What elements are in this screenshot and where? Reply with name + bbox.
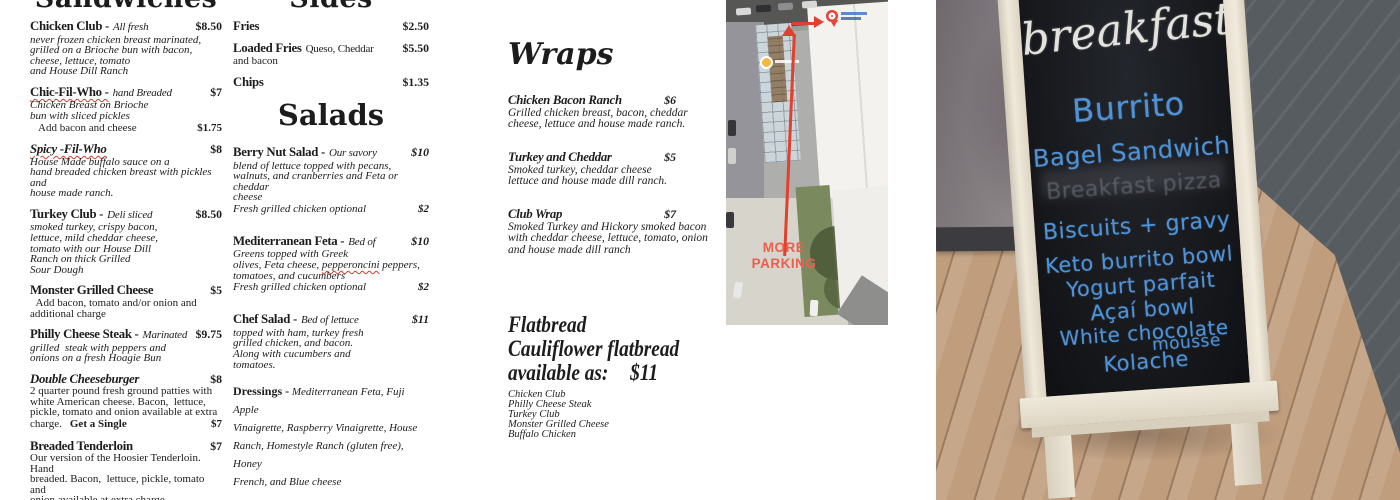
menu-item-chic-fil-who: Chic-Fil-Who - hand Breaded $7 Chicken B… xyxy=(30,86,222,134)
map-car xyxy=(728,148,736,164)
item-lead: All fresh xyxy=(113,21,148,34)
item-lead: Marinated xyxy=(143,329,188,342)
menu-item-monster-grilled-cheese: Monster Grilled Cheese $5 Add bacon, tom… xyxy=(30,284,222,319)
item-name: Spicy -Fil-Who xyxy=(30,143,107,156)
item-description: Smoked Turkey and Hickory smoked bacon w… xyxy=(508,222,713,257)
item-head: Turkey Club - Deli sliced $8.50 xyxy=(30,208,222,222)
item-price: $5 xyxy=(664,151,676,164)
item-head: Chips $1.35 xyxy=(233,76,429,89)
item-name: Philly Cheese Steak - xyxy=(30,328,139,341)
item-lead: Bed of xyxy=(348,236,375,249)
option-price: $2 xyxy=(418,204,429,215)
flatbread-block: Flatbread Cauliflower flatbread availabl… xyxy=(508,313,676,440)
map-poi-label xyxy=(775,60,799,63)
item-description: Greens topped with Greek olives, Feta ch… xyxy=(233,249,429,281)
addon-label: Add bacon and cheese xyxy=(30,123,137,135)
item-price: $2.50 xyxy=(402,20,429,33)
item-name: Mediterranean Feta - xyxy=(233,235,344,248)
item-lead: Deli sliced xyxy=(107,209,152,222)
sandwiches-column: Sandwiches Chicken Club - All fresh $8.5… xyxy=(30,0,222,500)
menu-item-turkey-and-cheddar: Turkey and Cheddar $5 Smoked turkey, che… xyxy=(508,151,676,188)
menu-item-philly-cheese-steak: Philly Cheese Steak - Marinated $9.75 gr… xyxy=(30,328,222,364)
item-price: $6 xyxy=(664,94,676,107)
item-description: Add bacon, tomato and/or onion and addit… xyxy=(30,298,222,319)
item-description: grilled steak with peppers and onions on… xyxy=(30,343,222,364)
location-map: MORE PARKING xyxy=(726,0,888,325)
addon-label: Get a Single xyxy=(62,419,127,431)
item-head: Fries $2.50 xyxy=(233,20,429,33)
item-lead: hand Breaded xyxy=(113,87,172,100)
flatbread-title-line2: Cauliflower flatbread xyxy=(508,337,649,361)
item-name: Monster Grilled Cheese xyxy=(30,284,153,297)
map-car xyxy=(726,212,734,228)
parking-arrow-right-icon xyxy=(814,16,824,28)
item-description: 2 quarter pound fresh ground patties wit… xyxy=(30,386,222,418)
item-head: Philly Cheese Steak - Marinated $9.75 xyxy=(30,328,222,342)
section-title-salads: Salads xyxy=(233,100,429,130)
menu-item-loaded-fries: Loaded Fries Queso, Cheddar $5.50 and ba… xyxy=(233,42,429,67)
item-head: Mediterranean Feta - Bed of $10 xyxy=(233,235,429,249)
section-title-sides: Sides xyxy=(233,0,429,12)
map-car xyxy=(728,120,736,136)
chalk-item: Biscuits + gravy xyxy=(1034,207,1239,246)
map-pin-icon xyxy=(830,20,838,27)
item-description: Mediterranean Feta, Fuji Apple Vinaigret… xyxy=(233,386,417,488)
option-price: $2 xyxy=(418,282,429,293)
menu-item-mediterranean-feta: Mediterranean Feta - Bed of $10 Greens t… xyxy=(233,235,429,293)
item-name: Breaded Tenderloin xyxy=(30,440,133,453)
item-name: Chicken Bacon Ranch xyxy=(508,94,622,107)
item-name: Turkey and Cheddar xyxy=(508,151,612,164)
item-description: House Made buffalo sauce on a hand bread… xyxy=(30,157,222,199)
map-building-roof xyxy=(807,1,888,207)
item-name: Dressings - xyxy=(233,384,289,398)
flatbread-options: Chicken Club Philly Cheese Steak Turkey … xyxy=(508,390,676,440)
item-description: Chicken Breast on Brioche bun with slice… xyxy=(30,100,222,121)
item-name: Fries xyxy=(233,20,259,33)
item-name: Club Wrap xyxy=(508,208,562,221)
item-option-row: Fresh grilled chicken optional $2 xyxy=(233,204,429,215)
menu-item-berry-nut-salad: Berry Nut Salad - Our savory $10 blend o… xyxy=(233,146,429,215)
map-car xyxy=(802,0,817,8)
menu-item-fries: Fries $2.50 xyxy=(233,20,429,33)
item-price: $7 xyxy=(210,440,222,453)
menu-item-chips: Chips $1.35 xyxy=(233,76,429,89)
map-poi-dot-icon xyxy=(760,56,773,69)
item-head: Chef Salad - Bed of lettuce $11 xyxy=(233,313,429,327)
chalk-title: breakfast xyxy=(1019,0,1227,66)
item-name: Turkey Club - xyxy=(30,208,103,221)
more-parking-label: MORE PARKING xyxy=(740,240,828,272)
item-description: blend of lettuce topped with pecans, wal… xyxy=(233,161,429,203)
chalk-item: Burrito xyxy=(1025,81,1231,133)
chalkboard-sign: breakfast Burrito Bagel Sandwich Breakfa… xyxy=(994,0,1278,500)
addon-price: $7 xyxy=(211,419,222,431)
item-tail: Queso, Cheddar xyxy=(306,43,374,56)
item-price: $8 xyxy=(210,143,222,156)
board-leg-right xyxy=(1231,422,1262,486)
item-head: Loaded Fries Queso, Cheddar $5.50 xyxy=(233,42,429,56)
item-head: Breaded Tenderloin $7 xyxy=(30,440,222,453)
map-car xyxy=(736,7,751,15)
menu-item-double-cheeseburger: Double Cheeseburger $8 2 quarter pound f… xyxy=(30,373,222,431)
menu-item-dressings: Dressings - Mediterranean Feta, Fuji App… xyxy=(233,382,429,490)
item-description: topped with ham, turkey fresh grilled ch… xyxy=(233,328,429,370)
item-name: Chef Salad - xyxy=(233,313,297,326)
item-head: Double Cheeseburger $8 xyxy=(30,373,222,386)
item-price: $7 xyxy=(210,86,222,99)
map-car xyxy=(756,4,771,12)
item-price: $7 xyxy=(664,208,676,221)
item-head: Monster Grilled Cheese $5 xyxy=(30,284,222,297)
map-pin-label xyxy=(841,17,861,20)
menu-item-spicy-fil-who: Spicy -Fil-Who $8 House Made buffalo sau… xyxy=(30,143,222,199)
chalkboard-surface: breakfast Burrito Bagel Sandwich Breakfa… xyxy=(1015,0,1250,397)
item-price: $9.75 xyxy=(195,328,222,341)
item-price: $5 xyxy=(210,284,222,297)
item-option-row: Fresh grilled chicken optional $2 xyxy=(233,282,429,293)
item-head: Chicken Club - All fresh $8.50 xyxy=(30,20,222,34)
parking-arrow-line xyxy=(792,22,816,25)
flatbread-option: Buffalo Chicken xyxy=(508,430,676,440)
menu-item-turkey-club: Turkey Club - Deli sliced $8.50 smoked t… xyxy=(30,208,222,275)
item-price: $10 xyxy=(411,146,429,159)
item-description: Our version of the Hoosier Tenderloin. H… xyxy=(30,453,222,500)
item-price: $8.50 xyxy=(195,20,222,33)
menu-page: Sandwiches Chicken Club - All fresh $8.5… xyxy=(0,0,1400,500)
item-head: Club Wrap $7 xyxy=(508,208,676,221)
item-name: Berry Nut Salad - xyxy=(233,146,325,159)
item-price: $11 xyxy=(412,313,429,326)
flatbread-price: $11 xyxy=(630,361,658,385)
item-name: Chic-Fil-Who - xyxy=(30,86,109,99)
addon-price: $1.75 xyxy=(197,123,222,135)
item-name: Chips xyxy=(233,76,264,89)
item-price: $8.50 xyxy=(195,208,222,221)
map-car xyxy=(810,300,819,316)
item-name: Chicken Club - xyxy=(30,20,109,33)
item-head: Chicken Bacon Ranch $6 xyxy=(508,94,676,107)
flatbread-title-line1: Flatbread xyxy=(508,313,649,337)
item-price: $10 xyxy=(411,235,429,248)
menu-item-breaded-tenderloin: Breaded Tenderloin $7 Our version of the… xyxy=(30,440,222,500)
sides-salads-column: Sides Fries $2.50 Loaded Fries Queso, Ch… xyxy=(233,0,429,500)
section-title-sandwiches: Sandwiches xyxy=(30,0,222,12)
item-addon-row: charge. Get a Single $7 xyxy=(30,419,222,431)
section-title-wraps: Wraps xyxy=(508,40,676,70)
menu-item-chef-salad: Chef Salad - Bed of lettuce $11 topped w… xyxy=(233,313,429,370)
flatbread-title-line3: available as: $11 xyxy=(508,361,649,385)
chalkboard-photo: breakfast Burrito Bagel Sandwich Breakfa… xyxy=(936,0,1400,500)
flatbread-available-label: available as: xyxy=(508,361,608,385)
item-addon-row: Add bacon and cheese $1.75 xyxy=(30,123,222,135)
board-leg-left xyxy=(1044,435,1075,499)
item-description: Smoked turkey, cheddar cheese lettuce an… xyxy=(508,165,713,189)
option-label: Fresh grilled chicken optional xyxy=(233,204,366,215)
item-price: $5.50 xyxy=(402,42,429,55)
item-description: Grilled chicken breast, bacon, cheddar c… xyxy=(508,108,713,132)
item-head: Turkey and Cheddar $5 xyxy=(508,151,676,164)
item-name: Double Cheeseburger xyxy=(30,373,139,386)
map-pin-label xyxy=(841,12,867,15)
item-name: Loaded Fries xyxy=(233,42,302,55)
menu-item-chicken-bacon-ranch: Chicken Bacon Ranch $6 Grilled chicken b… xyxy=(508,94,676,131)
menu-item-chicken-club: Chicken Club - All fresh $8.50 never fro… xyxy=(30,20,222,77)
item-head: Berry Nut Salad - Our savory $10 xyxy=(233,146,429,160)
option-label: Fresh grilled chicken optional xyxy=(233,282,366,293)
parking-arrow-up-icon xyxy=(782,25,796,36)
item-lead: Our savory xyxy=(329,147,377,160)
map-car xyxy=(778,2,793,10)
item-price: $1.35 xyxy=(402,76,429,89)
wraps-column: Wraps Chicken Bacon Ranch $6 Grilled chi… xyxy=(508,0,676,440)
addon-pre: charge. xyxy=(30,419,62,431)
item-price: $8 xyxy=(210,373,222,386)
item-head: Spicy -Fil-Who $8 xyxy=(30,143,222,156)
item-description: never frozen chicken breast marinated, g… xyxy=(30,35,222,77)
item-lead: Bed of lettuce xyxy=(301,314,359,327)
item-description: and bacon xyxy=(233,56,429,67)
menu-item-club-wrap: Club Wrap $7 Smoked Turkey and Hickory s… xyxy=(508,208,676,257)
item-head: Chic-Fil-Who - hand Breaded $7 xyxy=(30,86,222,100)
item-description: smoked turkey, crispy bacon, lettuce, mi… xyxy=(30,222,222,275)
